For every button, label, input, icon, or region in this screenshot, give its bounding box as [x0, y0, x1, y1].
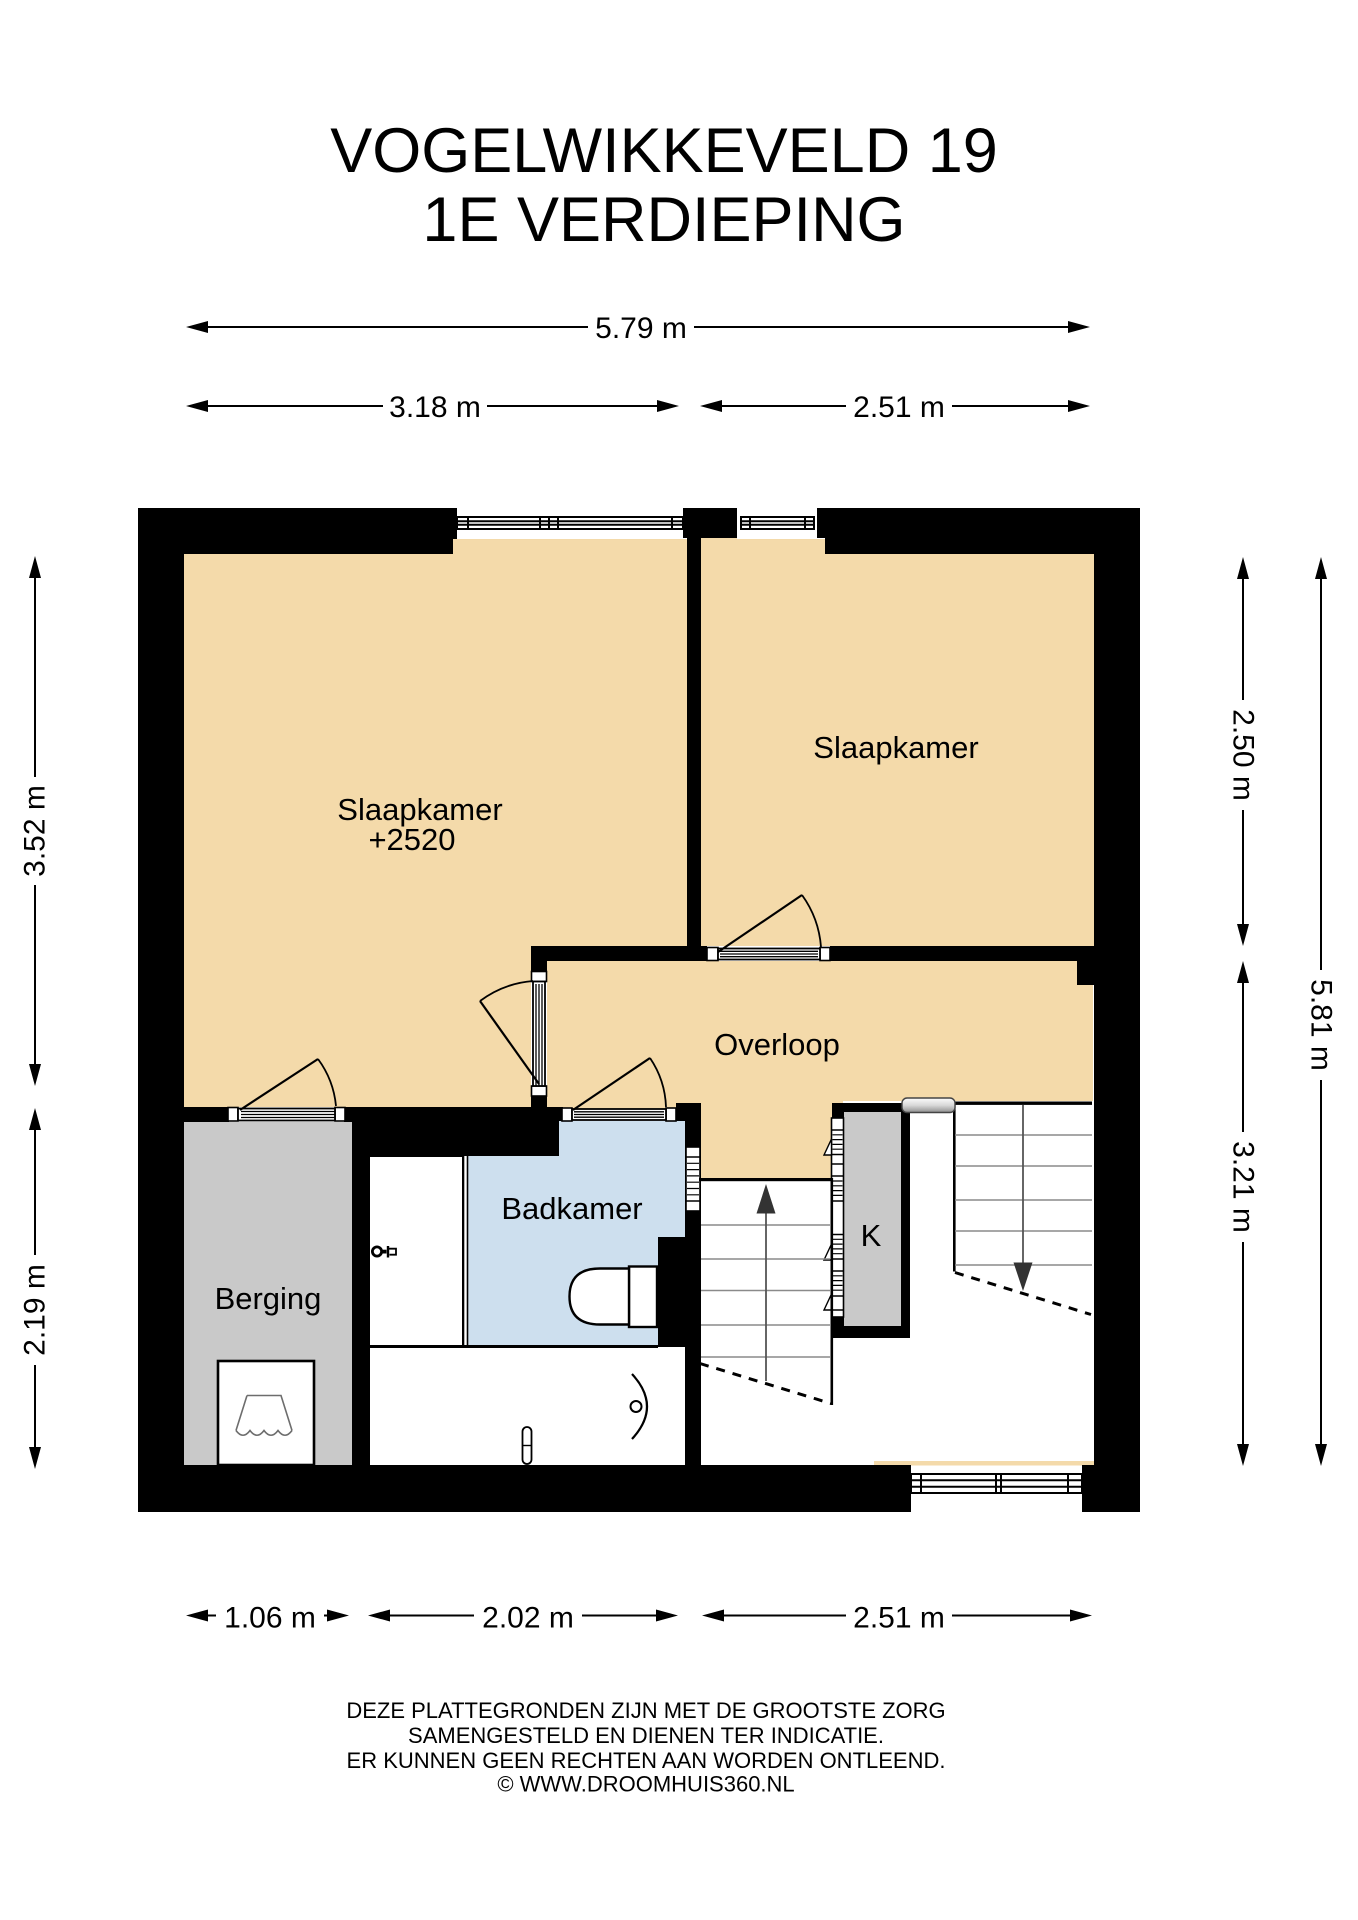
svg-text:1E VERDIEPING: 1E VERDIEPING: [422, 185, 905, 255]
svg-text:SAMENGESTELD EN DIENEN TER IND: SAMENGESTELD EN DIENEN TER INDICATIE.: [408, 1723, 884, 1748]
svg-text:ER KUNNEN GEEN RECHTEN AAN WOR: ER KUNNEN GEEN RECHTEN AAN WORDEN ONTLEE…: [347, 1748, 946, 1773]
svg-text:© WWW.DROOMHUIS360.NL: © WWW.DROOMHUIS360.NL: [497, 1772, 794, 1797]
svg-text:3.21 m: 3.21 m: [1227, 1141, 1260, 1233]
svg-text:2.02 m: 2.02 m: [482, 1602, 574, 1635]
svg-text:Overloop: Overloop: [714, 1027, 840, 1062]
svg-text:Slaapkamer: Slaapkamer: [813, 730, 978, 765]
svg-text:2.51 m: 2.51 m: [853, 391, 945, 424]
svg-text:2.51 m: 2.51 m: [853, 1602, 945, 1635]
svg-text:Berging: Berging: [215, 1281, 322, 1316]
svg-text:DEZE PLATTEGRONDEN ZIJN MET DE: DEZE PLATTEGRONDEN ZIJN MET DE GROOTSTE …: [346, 1698, 945, 1723]
svg-text:2.19 m: 2.19 m: [19, 1264, 52, 1356]
svg-text:K: K: [861, 1218, 882, 1253]
svg-text:2.50 m: 2.50 m: [1227, 709, 1260, 801]
svg-text:+2520: +2520: [368, 822, 455, 857]
svg-text:Badkamer: Badkamer: [501, 1191, 642, 1226]
svg-text:3.18 m: 3.18 m: [389, 391, 481, 424]
svg-text:1.06 m: 1.06 m: [224, 1602, 316, 1635]
svg-text:3.52 m: 3.52 m: [19, 785, 52, 877]
svg-text:5.81 m: 5.81 m: [1305, 979, 1338, 1071]
svg-text:5.79 m: 5.79 m: [595, 312, 687, 345]
svg-text:VOGELWIKKEVELD 19: VOGELWIKKEVELD 19: [330, 116, 998, 186]
